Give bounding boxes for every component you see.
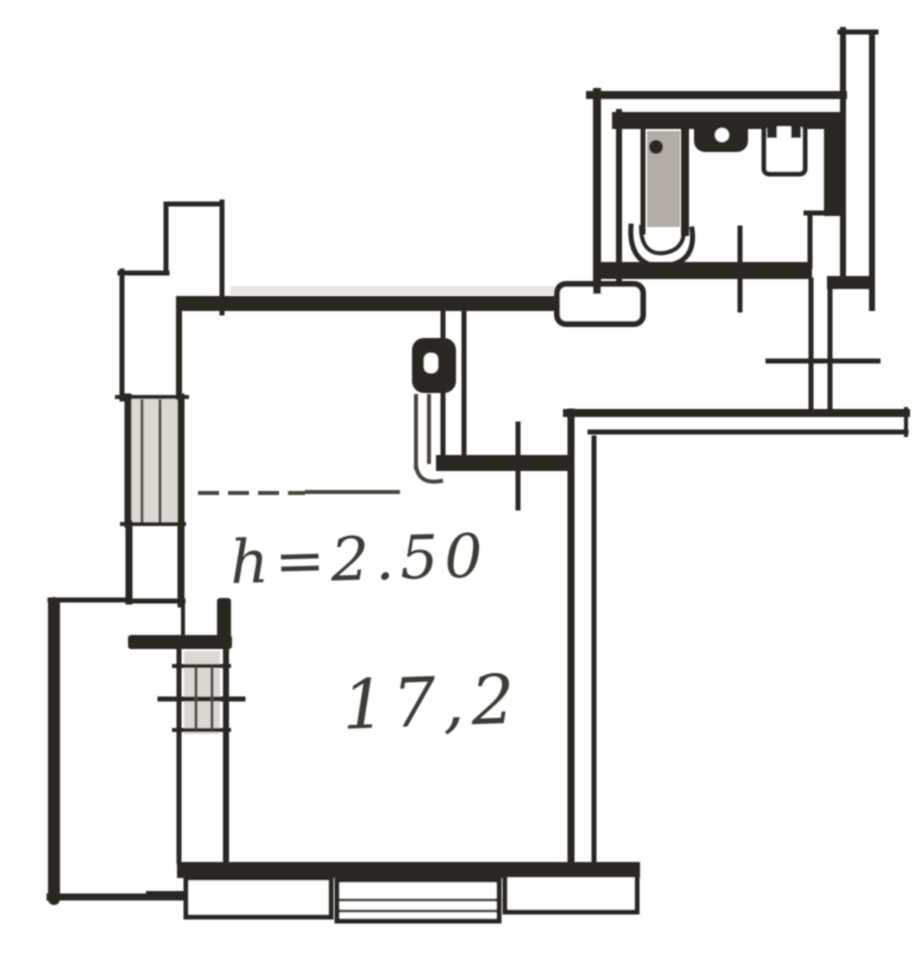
corridor-wall: [567, 409, 906, 435]
entry-hall-partition: [436, 312, 573, 508]
sink-icon: [764, 124, 805, 174]
window-mark: [337, 880, 499, 921]
window-mark: [117, 397, 187, 526]
left-wall: [128, 524, 232, 649]
floor-plan-drawing: h=2.50 17,2: [0, 0, 920, 974]
room-area-label: 17,2: [341, 660, 523, 745]
window-mark: [505, 875, 637, 912]
balcony-window-mark: [160, 648, 243, 862]
window-mark: [186, 878, 331, 917]
right-outer-wall: [768, 30, 878, 412]
faucet-icon: [694, 118, 748, 152]
ceiling-height-label: h=2.50: [229, 521, 489, 598]
measure-dashed-line: [200, 492, 398, 493]
bathtub-icon: [631, 128, 693, 266]
floor-plan-scan: h=2.50 17,2: [0, 0, 920, 974]
